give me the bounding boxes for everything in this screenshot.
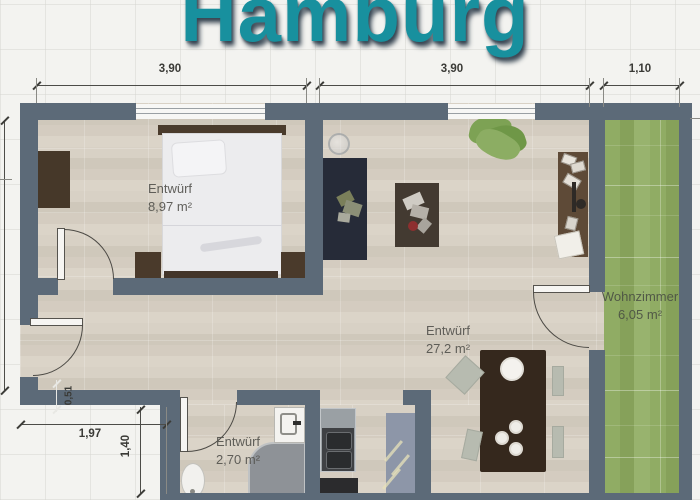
dim-step: 0,51 (64, 378, 75, 414)
dim-extension (603, 78, 604, 107)
dim-extension (319, 78, 320, 103)
bathroom-area: 2,70 m² (216, 452, 260, 467)
balcony-tile-line (604, 185, 679, 186)
balcony-tile-line (604, 390, 679, 391)
small-plate (509, 420, 523, 434)
dim-top-3: 1,10 (610, 63, 670, 75)
bathroom-label: Entwürf 2,70 m² (188, 433, 288, 469)
wall-left-upper (20, 103, 38, 325)
bed-blanket-seam (162, 225, 282, 226)
wall-bath-left (160, 390, 180, 500)
stove-burner (326, 451, 352, 469)
wall-balcony-left-lower (589, 350, 605, 496)
dim-extension (589, 78, 590, 107)
bedroom-label: Entwürf 8,97 m² (120, 180, 220, 216)
wall-top-mid (265, 103, 448, 120)
nightstand-left (135, 252, 161, 279)
living-area-area: 27,2 m² (426, 341, 470, 356)
dim-extension (36, 78, 37, 103)
navy-rug-item (337, 212, 350, 223)
balcony-tile-line (604, 257, 679, 258)
small-plate (495, 431, 509, 445)
dining-chair (552, 426, 564, 458)
wall-bath-kitchen (305, 390, 320, 500)
bed-pillow (171, 139, 227, 178)
dim-notch-width: 1,97 (60, 428, 120, 440)
wall-hall-south (20, 390, 180, 405)
large-plate (500, 357, 524, 381)
sink-faucet (293, 421, 301, 425)
dim-line (20, 424, 166, 425)
bedroom-window (136, 104, 265, 119)
dim-extension (679, 78, 680, 107)
balcony-tile-line (604, 457, 679, 458)
dim-top-2: 3,90 (422, 63, 482, 75)
wall-top-right (535, 103, 692, 120)
wall-bedroom-living (305, 120, 323, 295)
desk-bar (572, 182, 576, 212)
floor-plan-canvas: Hamburg (0, 0, 700, 500)
dim-line (36, 85, 306, 86)
balcony-label: Wohnzimmer 6,05 m² (590, 288, 690, 324)
ceiling-light (328, 133, 350, 155)
dim-notch-height: 1,40 (120, 426, 132, 466)
small-plate (509, 442, 523, 456)
dim-line-left (4, 120, 5, 390)
nightstand-right (281, 252, 306, 279)
dim-line (319, 85, 589, 86)
bathroom-name: Entwürf (216, 434, 260, 449)
living-area-label: Entwürf 27,2 m² (398, 322, 498, 358)
dresser (37, 151, 70, 208)
dining-chair (552, 366, 564, 396)
stove-burner (326, 432, 352, 450)
balcony-name: Wohnzimmer (602, 289, 678, 304)
wall-balcony-left-upper (589, 120, 605, 292)
dim-line (140, 407, 141, 494)
bedroom-name: Entwürf (148, 181, 192, 196)
dim-line (603, 85, 679, 86)
bedroom-area: 8,97 m² (148, 199, 192, 214)
wall-bedroom-south (113, 278, 323, 295)
desk-bar-plate (576, 199, 586, 209)
dim-top-1: 3,90 (140, 63, 200, 75)
dim-extension (166, 407, 167, 494)
dim-extension (306, 78, 307, 103)
dim-extension (0, 179, 12, 180)
living-area-name: Entwürf (426, 323, 470, 338)
page-title: Hamburg (30, 0, 680, 58)
living-window (448, 104, 535, 119)
wall-bedroom-south-left (38, 278, 58, 295)
dim-extension (690, 118, 700, 119)
wall-kitchen-right (415, 390, 431, 500)
balcony-area: 6,05 m² (618, 307, 662, 322)
brown-rug-red-item (408, 221, 418, 231)
